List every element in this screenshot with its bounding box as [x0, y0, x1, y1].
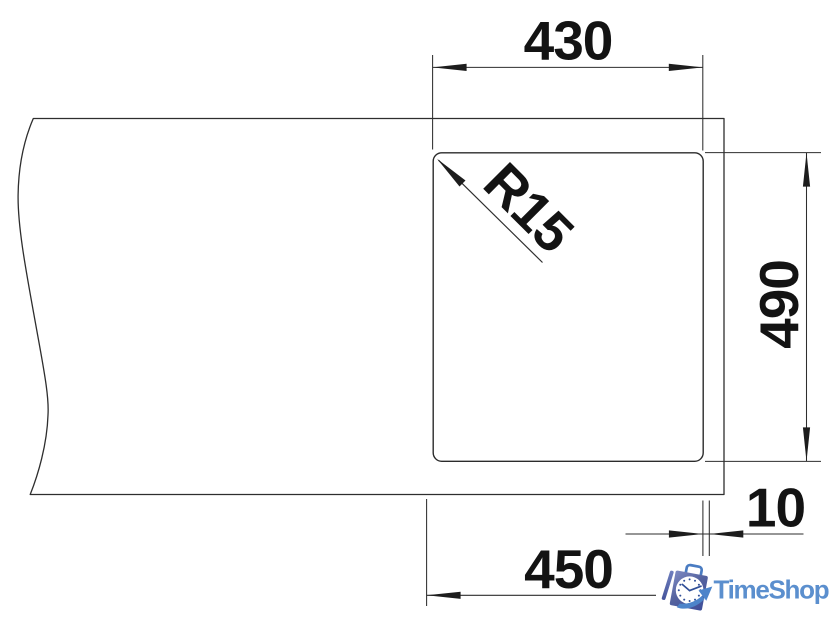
svg-text:490: 490 [748, 260, 810, 349]
svg-text:10: 10 [746, 477, 805, 539]
svg-text:TimeShop: TimeShop [714, 575, 829, 605]
svg-text:450: 450 [524, 538, 613, 600]
svg-text:430: 430 [524, 10, 613, 72]
